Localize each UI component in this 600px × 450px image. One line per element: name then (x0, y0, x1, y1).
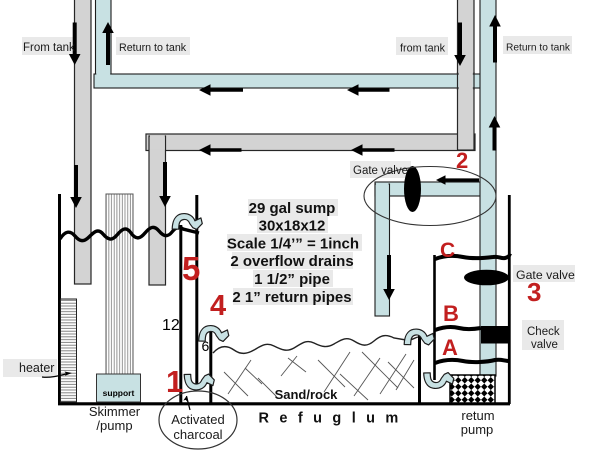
svg-text:C: C (440, 239, 455, 262)
svg-text:R e f u g l u m: R e f u g l u m (258, 411, 401, 427)
svg-text:Sand/rock: Sand/rock (275, 387, 339, 402)
svg-text:support: support (103, 388, 135, 398)
svg-text:30x18x12: 30x18x12 (259, 218, 326, 235)
svg-text:Return to tank: Return to tank (506, 43, 571, 54)
svg-text:Gate valve: Gate valve (353, 165, 408, 177)
svg-text:1: 1 (166, 364, 183, 399)
svg-text:heater: heater (19, 361, 54, 375)
svg-text:Scale 1/4’” = 1inch: Scale 1/4’” = 1inch (227, 236, 359, 253)
svg-text:Gate valve: Gate valve (516, 268, 575, 282)
svg-text:Check: Check (527, 326, 560, 338)
svg-text:6: 6 (202, 338, 210, 354)
svg-text:1 1/2” pipe: 1 1/2” pipe (254, 271, 330, 288)
svg-text:valve: valve (531, 339, 558, 351)
svg-text:pump: pump (461, 422, 494, 437)
svg-text:Return to tank: Return to tank (119, 42, 187, 54)
svg-text:Skimmer: Skimmer (89, 404, 141, 419)
svg-text:A: A (442, 335, 458, 360)
svg-text:4: 4 (210, 290, 226, 322)
svg-text:12: 12 (162, 317, 180, 334)
svg-text:From tank: From tank (23, 42, 75, 54)
svg-text:B: B (443, 301, 459, 326)
svg-text:3: 3 (527, 277, 541, 307)
svg-text:/pump: /pump (96, 418, 132, 433)
svg-text:29 gal sump: 29 gal sump (249, 200, 336, 217)
svg-text:from tank: from tank (400, 43, 446, 55)
svg-text:retum: retum (461, 408, 494, 423)
svg-text:charcoal: charcoal (173, 427, 222, 442)
svg-text:Activated: Activated (171, 412, 224, 427)
svg-text:2 overflow drains: 2 overflow drains (230, 253, 353, 270)
svg-text:5: 5 (182, 250, 200, 287)
svg-text:2: 2 (456, 148, 468, 173)
svg-text:2 1” return pipes: 2 1” return pipes (232, 289, 351, 306)
